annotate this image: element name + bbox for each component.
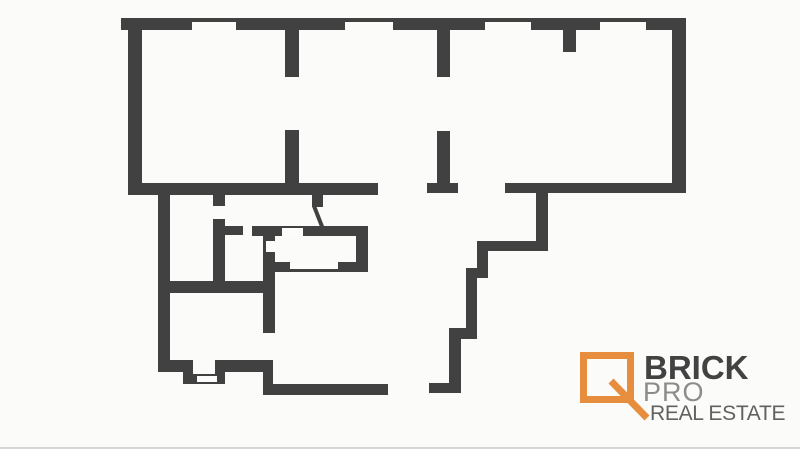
brickpro-logo: BRICK PRO REAL ESTATE: [0, 0, 800, 449]
screenshot-canvas: BRICK PRO REAL ESTATE: [0, 0, 800, 449]
logo-square-icon: [580, 352, 634, 403]
logo-tagline-text: REAL ESTATE: [650, 403, 785, 424]
